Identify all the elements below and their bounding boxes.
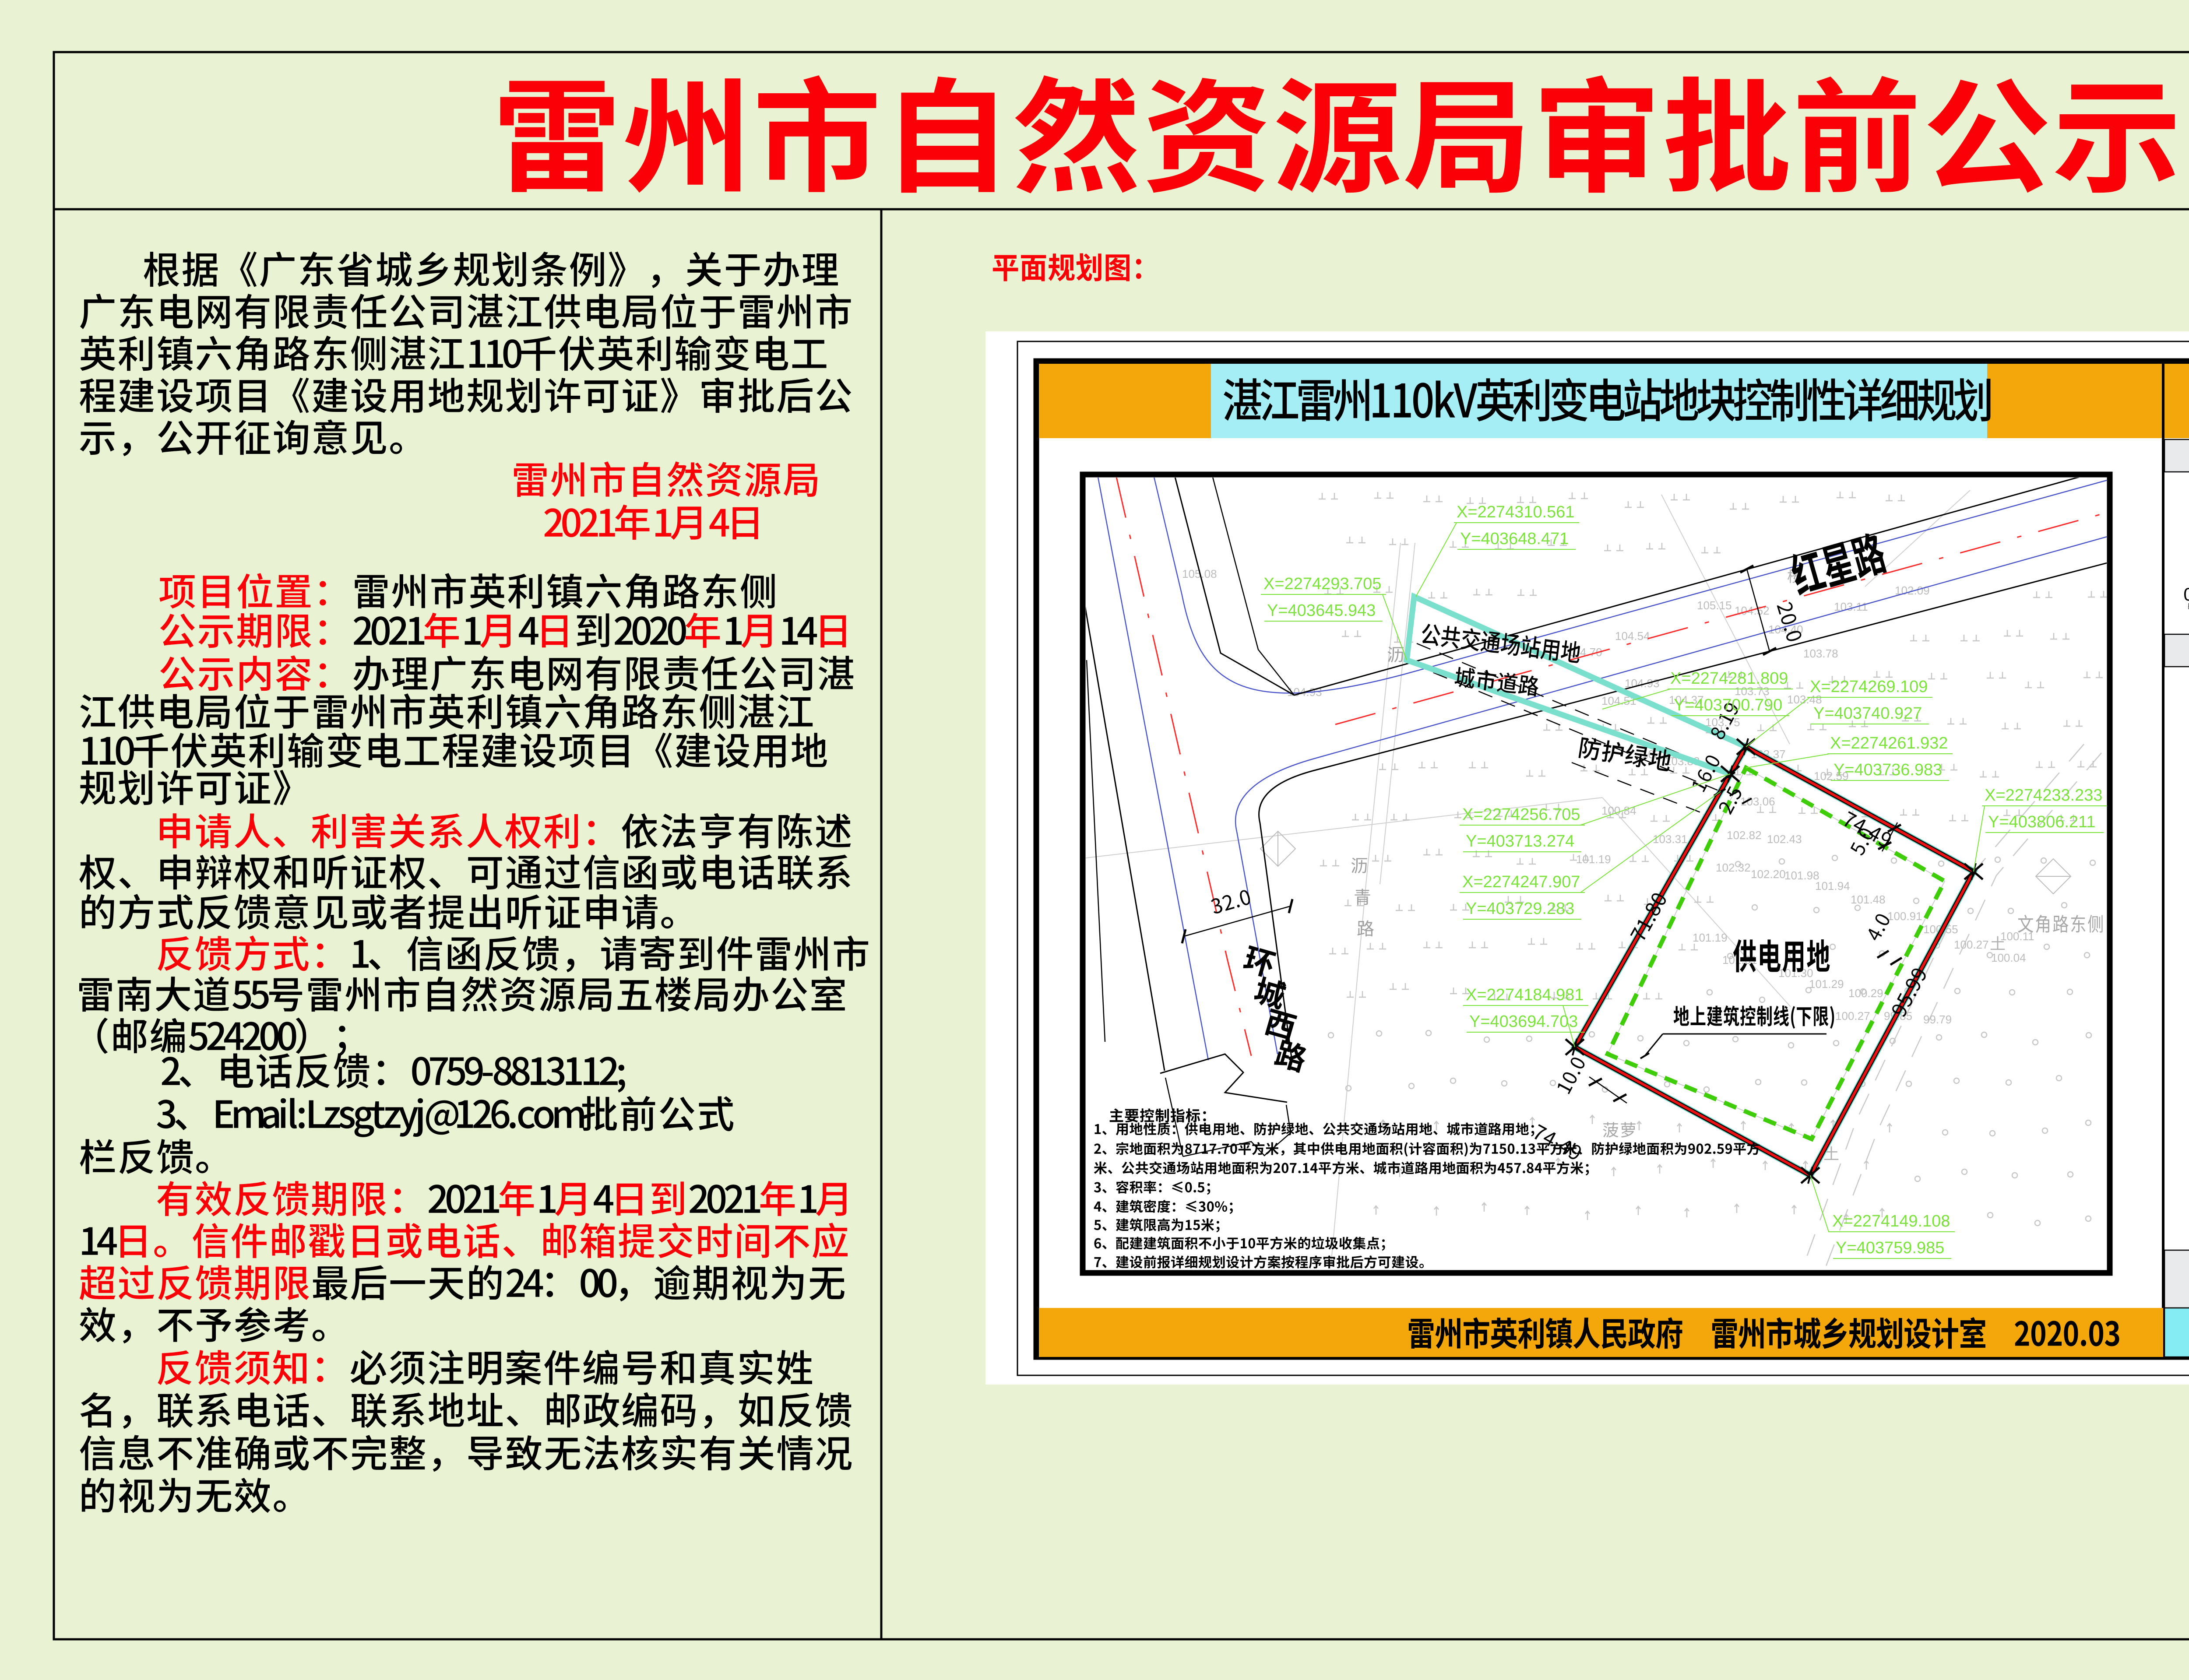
svg-text:104.54: 104.54 bbox=[1615, 629, 1650, 643]
svg-text:103.78: 103.78 bbox=[1803, 647, 1838, 660]
svg-text:Y=403645.943: Y=403645.943 bbox=[1267, 601, 1376, 620]
svg-text:103.31: 103.31 bbox=[1653, 833, 1688, 846]
svg-text:Y=403736.983: Y=403736.983 bbox=[1834, 761, 1942, 779]
svg-text:102.43: 102.43 bbox=[1767, 833, 1802, 846]
svg-text:100.84: 100.84 bbox=[1601, 804, 1636, 817]
svg-text:100.04: 100.04 bbox=[1991, 951, 2026, 964]
svg-text:X=2274261.932: X=2274261.932 bbox=[1830, 734, 1948, 752]
svg-text:X=2274310.561: X=2274310.561 bbox=[1457, 503, 1574, 521]
svg-text:X=2274281.809: X=2274281.809 bbox=[1670, 669, 1788, 688]
svg-text:101.94: 101.94 bbox=[1815, 879, 1850, 893]
svg-text:X=2274293.705: X=2274293.705 bbox=[1263, 575, 1381, 593]
svg-text:103.75: 103.75 bbox=[1705, 716, 1740, 729]
svg-text:Y=403740.927: Y=403740.927 bbox=[1813, 704, 1922, 723]
svg-text:102.20: 102.20 bbox=[1751, 868, 1786, 881]
svg-text:101.29: 101.29 bbox=[1809, 977, 1844, 991]
svg-text:99.79: 99.79 bbox=[1923, 1013, 1952, 1026]
svg-text:Y=403648.471: Y=403648.471 bbox=[1460, 530, 1569, 548]
svg-text:X=2274256.705: X=2274256.705 bbox=[1462, 805, 1580, 824]
svg-text:X=2274184.981: X=2274184.981 bbox=[1466, 986, 1584, 1004]
svg-text:0: 0 bbox=[2183, 584, 2189, 605]
svg-text:102.32: 102.32 bbox=[1716, 861, 1751, 874]
svg-text:Y=403713.274: Y=403713.274 bbox=[1466, 832, 1574, 851]
svg-text:100.11: 100.11 bbox=[2000, 930, 2034, 943]
svg-text:X=2274247.907: X=2274247.907 bbox=[1462, 873, 1580, 891]
svg-text:100.27: 100.27 bbox=[1835, 1009, 1870, 1023]
svg-text:102.82: 102.82 bbox=[1727, 829, 1762, 842]
svg-text:100.91: 100.91 bbox=[1887, 910, 1922, 923]
svg-text:Y=403759.985: Y=403759.985 bbox=[1836, 1239, 1944, 1257]
svg-text:100.27: 100.27 bbox=[1954, 938, 1989, 951]
svg-text:101.19: 101.19 bbox=[1693, 931, 1728, 944]
svg-text:100.29: 100.29 bbox=[1848, 987, 1883, 1000]
svg-text:101.19: 101.19 bbox=[1576, 853, 1611, 866]
svg-text:Y=403694.703: Y=403694.703 bbox=[1469, 1012, 1578, 1031]
svg-text:Y=403806.211: Y=403806.211 bbox=[1988, 813, 2095, 831]
svg-text:X=2274269.109: X=2274269.109 bbox=[1810, 678, 1928, 696]
svg-text:101.48: 101.48 bbox=[1851, 893, 1886, 906]
svg-text:101.98: 101.98 bbox=[1784, 869, 1819, 882]
svg-text:X=2274149.108: X=2274149.108 bbox=[1832, 1212, 1950, 1230]
svg-text:Y=403700.790: Y=403700.790 bbox=[1674, 696, 1782, 714]
svg-text:X=2274233.233: X=2274233.233 bbox=[1985, 786, 2102, 805]
svg-text:105.15: 105.15 bbox=[1697, 599, 1732, 612]
svg-text:Y=403729.283: Y=403729.283 bbox=[1466, 900, 1574, 918]
